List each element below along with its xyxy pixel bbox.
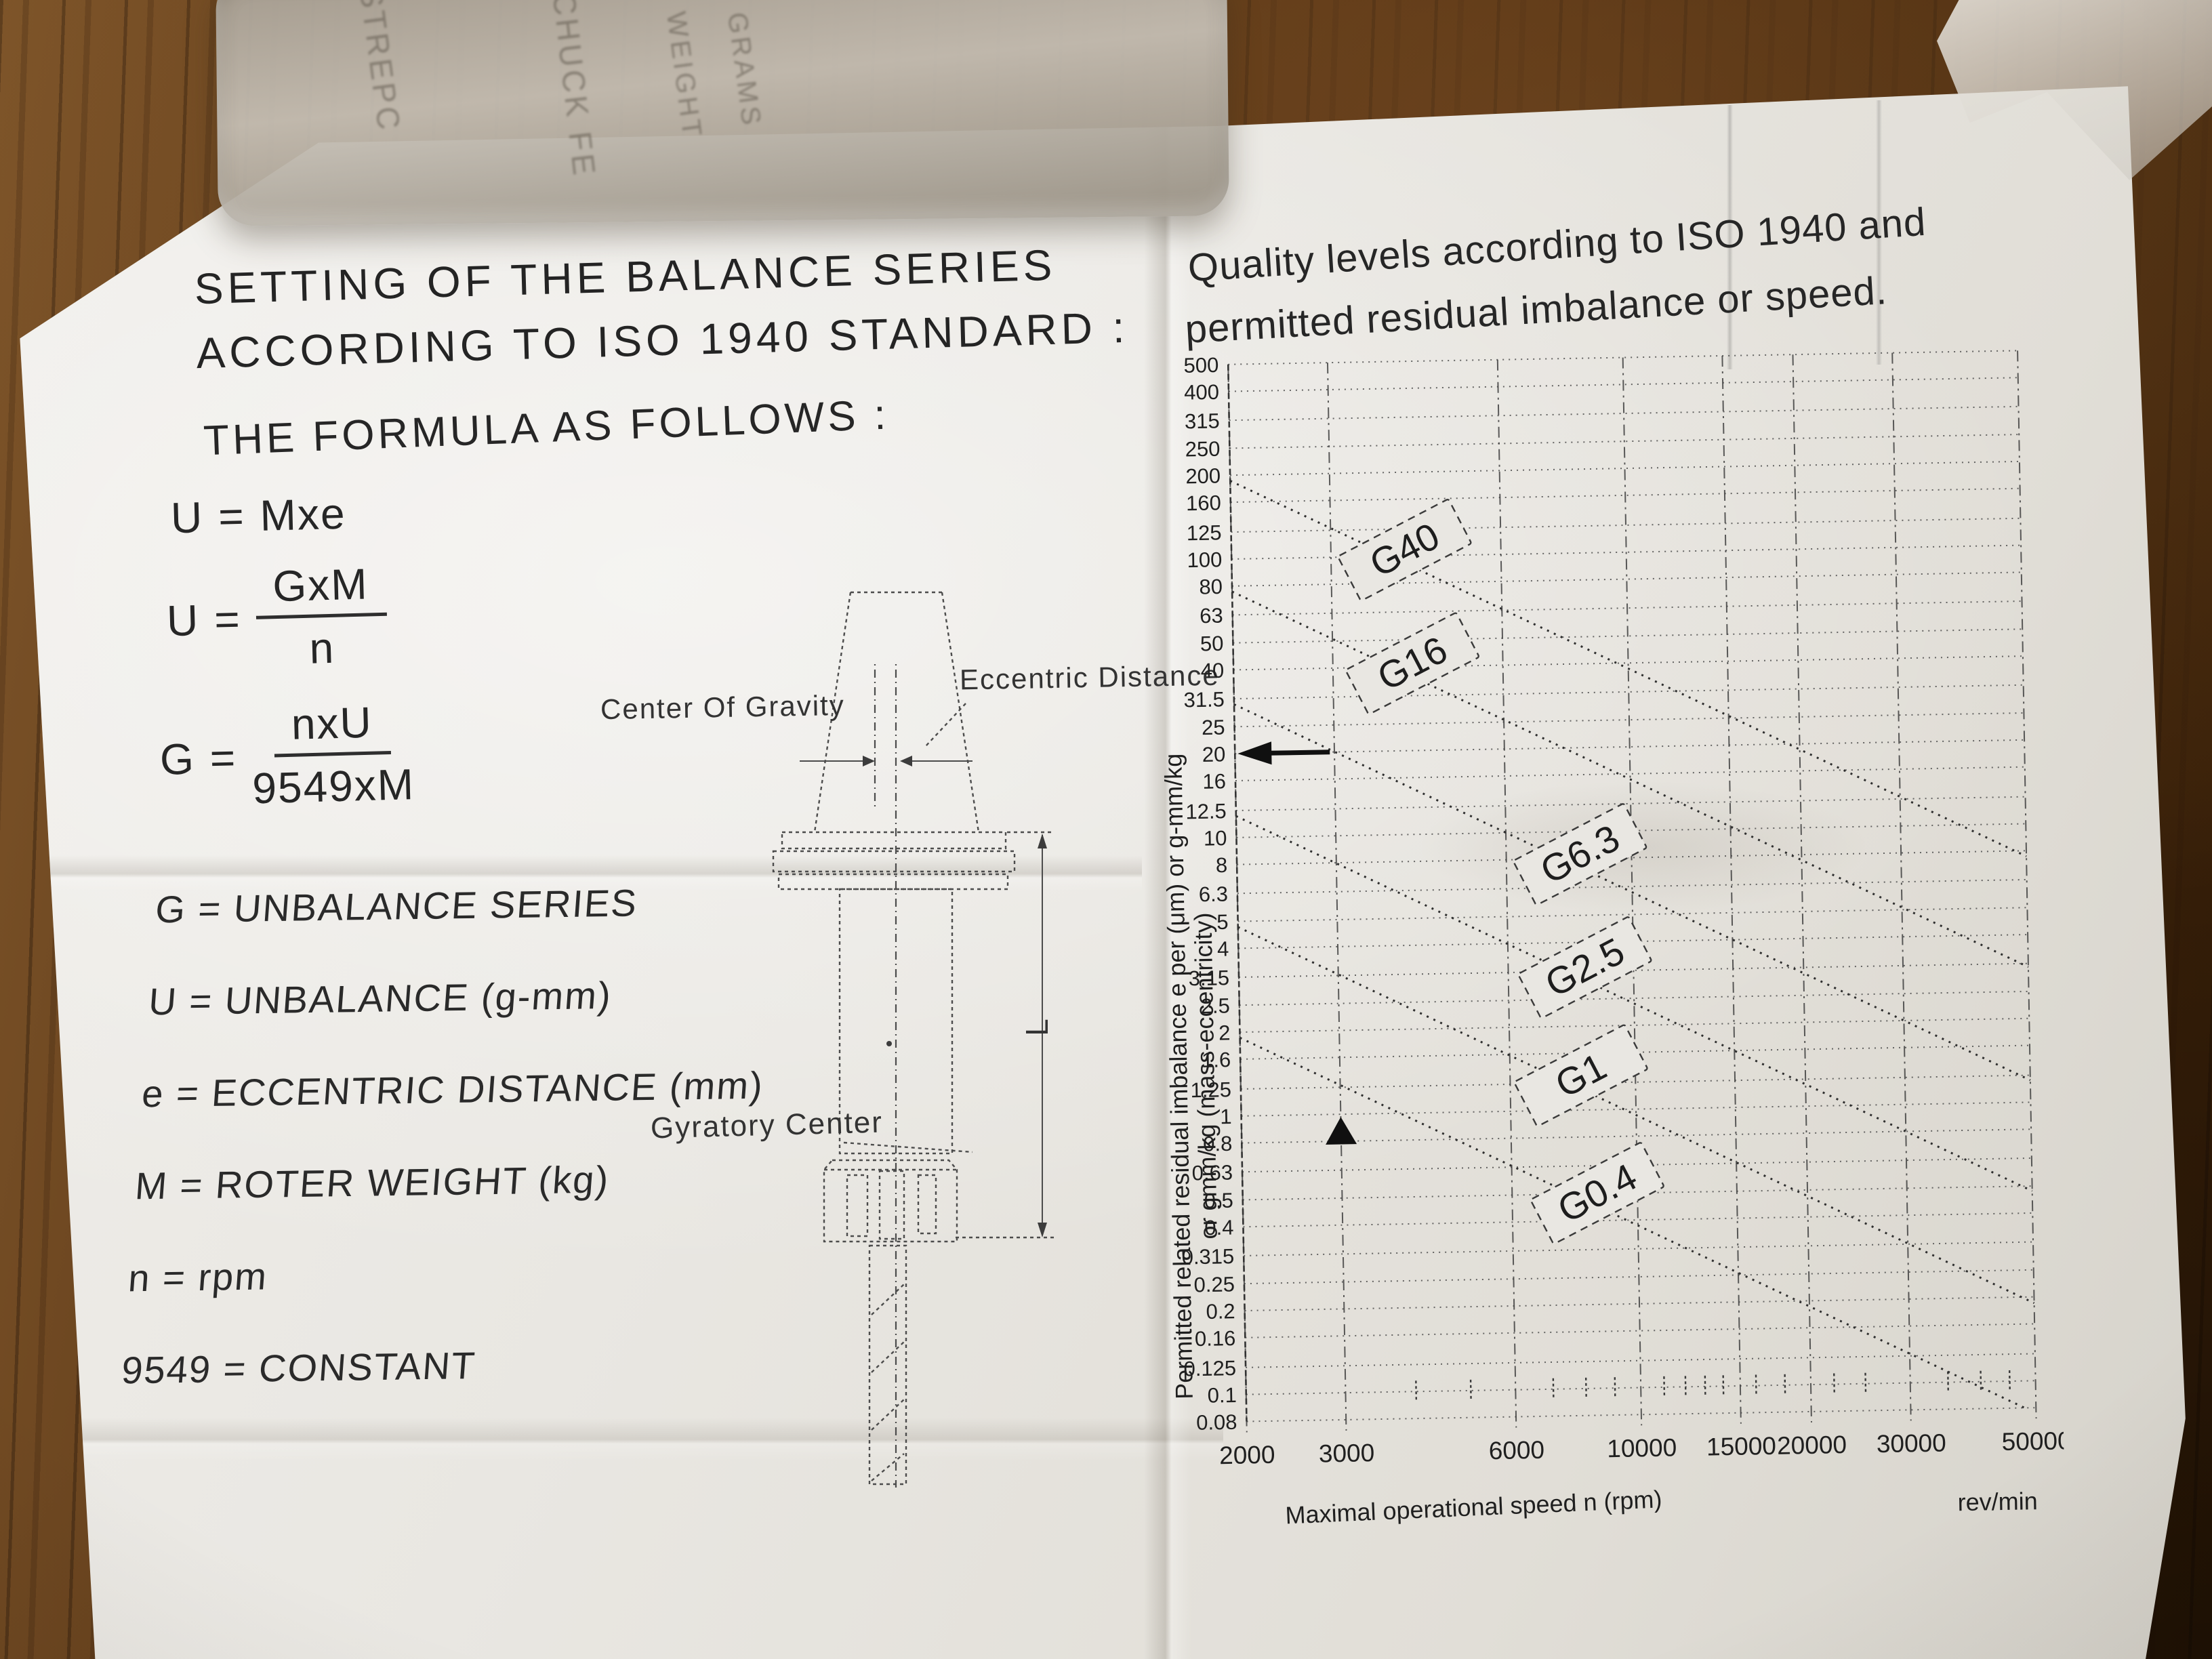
x-minor-tick-18000 [1785,1374,1786,1396]
formula3-fraction: nxU 9549xM [250,696,415,813]
x-gridline-50000 [2018,350,2036,1418]
g-line-G6.3 [1234,691,2030,1094]
y-tick-label-160: 160 [1186,491,1221,515]
length-arrow-top [1038,834,1047,848]
formula2-lhs: U [166,595,200,646]
iso1940-chart-svg: 5004003152502001601251008063504031.52520… [1157,330,2066,1538]
y-tick-label-50: 50 [1200,632,1224,656]
drill-bit [869,1246,906,1484]
x-minor-tick-22000 [1834,1374,1835,1395]
x-gridline-20000 [1793,354,1811,1422]
nut-slot-middle [880,1171,904,1239]
x-tick-label-10000: 10000 [1607,1433,1677,1462]
y-tick-label-200: 200 [1185,464,1221,488]
annotation-arrow-left [1237,741,1272,765]
formula3-numerator: nxU [273,697,391,757]
formula-g-equals-nxu-over-9549xm: G = nxU 9549xM [159,696,415,816]
formula1-rhs: Mxe [260,489,347,541]
y-tick-label-31.5: 31.5 [1183,687,1225,712]
body-center-dot [886,1041,892,1046]
drill-flute-1 [872,1284,904,1315]
container-faint-label-1: STREPC [352,0,408,135]
x-minor-tick-11000 [1664,1376,1664,1398]
y-tick-label-5: 5 [1216,910,1229,934]
flange-ring-3 [779,874,1008,889]
y-tick-label-12.5: 12.5 [1185,799,1227,823]
photo-scene: SETTING OF THE BALANCE SERIES ACCORDING … [0,0,2212,1659]
x-gridline-15000 [1722,356,1741,1424]
formula3-equals: = [209,732,237,783]
formula1-lhs: U [170,492,204,543]
drill-flute-3 [872,1399,904,1430]
collet-nut [824,1160,957,1242]
y-tick-label-100: 100 [1187,548,1222,572]
x-minor-tick-5000 [1471,1380,1471,1401]
drill-flute-2 [872,1342,904,1372]
nut-slot-right [918,1175,936,1233]
x-gridline-30000 [1892,353,1911,1421]
x-minor-tick-13000 [1705,1376,1706,1397]
x-axis-label: Maximal operational speed n (rpm) [1285,1485,1663,1529]
formula1-equals: = [218,491,245,542]
y-tick-label-6.3: 6.3 [1198,882,1228,907]
annotation-arrow-up [1325,1117,1357,1145]
x-tick-label-50000: 50000 [2001,1427,2065,1456]
x-minor-tick-7000 [1553,1378,1554,1400]
g-line-G0.4 [1240,1024,2025,1421]
nut-slot-left [847,1175,867,1236]
x-minor-tick-40000 [1981,1371,1982,1393]
y-tick-label-0.25: 0.25 [1193,1272,1235,1296]
y-axis-label-line2: or gmm/kg (mass-eccentricity) [1189,912,1222,1240]
y-tick-label-40: 40 [1200,659,1224,683]
y-tick-label-250: 250 [1185,437,1220,462]
length-dimension-label: L [1019,1017,1055,1036]
gyratory-leader-line [844,1143,972,1152]
y-tick-label-25: 25 [1202,716,1225,740]
x-axis-unit-label: rev/min [1957,1487,2038,1516]
formula3-denominator: 9549xM [251,754,415,813]
y-tick-label-0.1: 0.1 [1207,1383,1237,1408]
g-label-G6.3: G6.3 [1513,803,1647,905]
g-label-G2.5: G2.5 [1518,916,1652,1019]
y-tick-label-4: 4 [1217,937,1229,961]
formula2-denominator: n [308,617,335,674]
x-gridline-6000 [1498,360,1517,1428]
y-tick-label-0.08: 0.08 [1196,1410,1237,1435]
y-tick-label-2: 2 [1218,1021,1231,1044]
container-faint-label-4: GRAMS [721,11,766,130]
y-tick-label-0.16: 0.16 [1195,1326,1236,1351]
flange-ring-1 [782,832,1006,848]
x-minor-tick-14000 [1723,1375,1724,1397]
y-tick-label-20: 20 [1202,742,1226,766]
x-tick-label-30000: 30000 [1877,1429,1947,1458]
plastic-container: STREPC CHUCK FE WEIGHT GRAMS [216,0,1229,226]
x-tick-label-3000: 3000 [1319,1439,1375,1467]
x-tick-label-6000: 6000 [1488,1436,1544,1465]
formula2-equals: = [213,594,241,644]
x-minor-tick-8000 [1586,1378,1586,1399]
y-tick-label-63: 63 [1200,604,1223,628]
g-label-G1: G1 [1514,1025,1647,1127]
y-tick-label-315: 315 [1185,409,1220,433]
g-label-G16: G16 [1345,613,1479,715]
center-of-gravity-label: Center Of Gravity [600,689,846,726]
eccentric-leader-line [925,703,966,747]
y-tick-label-10: 10 [1204,826,1227,851]
x-minor-tick-16000 [1756,1375,1757,1397]
y-tick-label-125: 125 [1187,520,1222,545]
formula-u-equals-gxm-over-n: U = GxM n [165,558,388,677]
y-tick-label-0.2: 0.2 [1206,1299,1235,1324]
x-gridline-3000 [1328,363,1347,1431]
y-tick-label-80: 80 [1199,575,1223,599]
g-label-G0.4: G0.4 [1530,1142,1664,1244]
y-tick-label-400: 400 [1184,380,1219,405]
y-tick-label-500: 500 [1183,353,1218,377]
y-tick-label-1: 1 [1220,1105,1232,1128]
eccentric-arrow-left-head [863,756,875,766]
formula2-numerator: GxM [254,558,386,619]
drill-flute-4 [872,1454,904,1481]
x-tick-label-20000: 20000 [1777,1431,1847,1460]
x-tick-label-2000: 2000 [1219,1441,1275,1469]
g-label-G40: G40 [1338,499,1471,601]
x-minor-tick-25000 [1865,1373,1866,1395]
formula2-fraction: GxM n [254,558,388,675]
y-tick-label-8: 8 [1216,853,1228,877]
container-faint-label-3: WEIGHT [660,9,708,141]
taper-right-side [942,592,979,832]
gyratory-center-label: Gyratory Center [650,1106,883,1146]
y-tick-label-16: 16 [1202,769,1226,794]
formula-u-equals-mxe: U = Mxe [170,489,346,544]
formula3-lhs: G [159,733,196,784]
length-arrow-bottom [1038,1223,1047,1237]
document-title: SETTING OF THE BALANCE SERIES ACCORDING … [194,231,1130,386]
x-minor-tick-4000 [1416,1380,1416,1402]
flange-ring-2 [773,851,1015,872]
iso1940-quality-chart: 5004003152502001601251008063504031.52520… [1157,330,2066,1538]
x-minor-tick-9000 [1615,1377,1616,1399]
x-tick-label-15000: 15000 [1706,1432,1777,1461]
eccentric-arrow-right-head [900,756,912,766]
g-line-G1 [1238,914,2034,1317]
container-faint-label-2: CHUCK FE [546,0,603,180]
annotation-arrow-left-tail [1269,752,1330,754]
